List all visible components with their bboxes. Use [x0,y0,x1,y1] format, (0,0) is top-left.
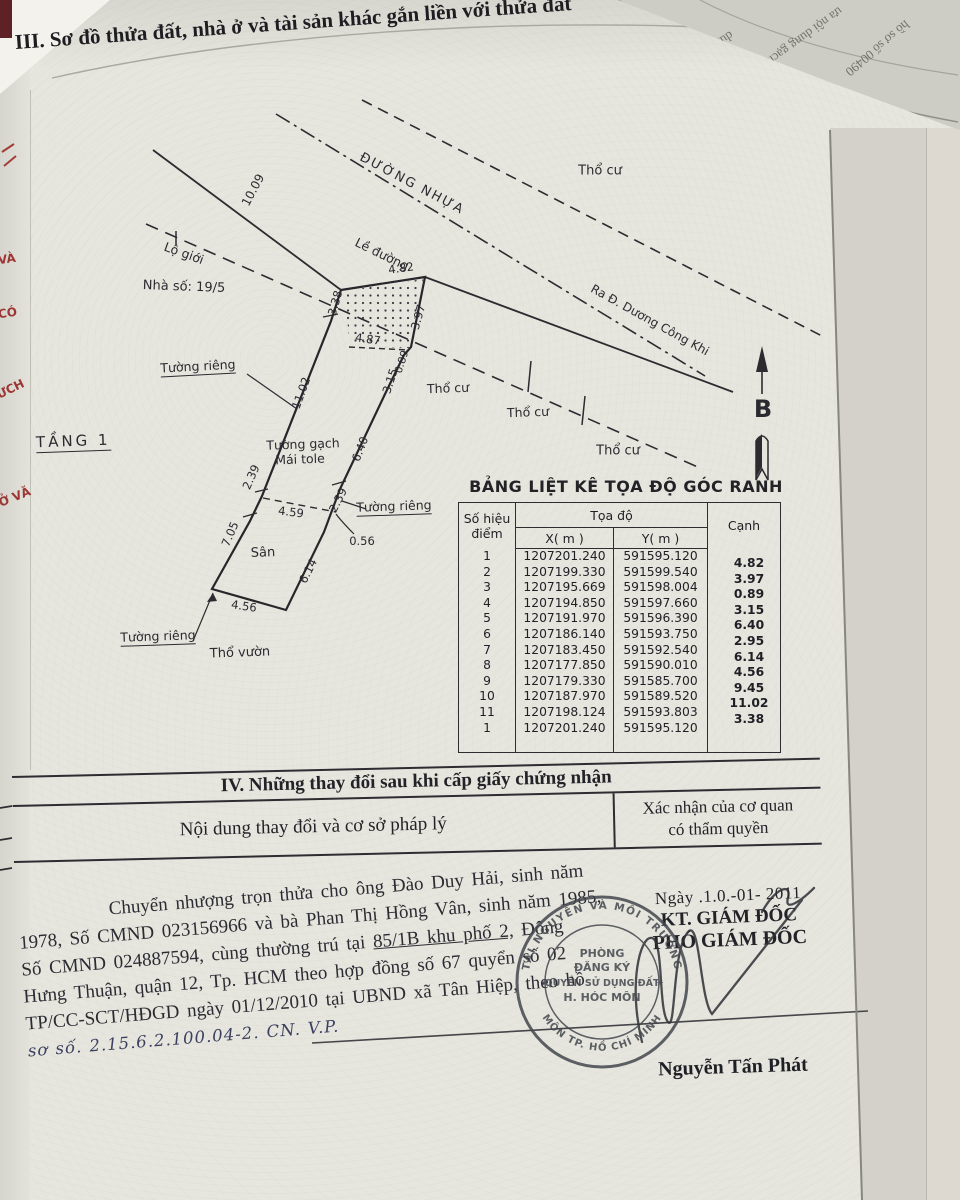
red-hatch-marks [2,144,16,166]
stamp-center-line2: ĐĂNG KÝ [574,961,631,974]
stamp-star-left: ★ [540,979,548,989]
red-fragment-1: VÀ [0,251,17,267]
maroon-corner-strip [0,0,12,38]
stamp-center-line3: QUYỀN SỬ DỤNG ĐẤT [545,976,660,989]
stamp-center-line1: PHÒNG [580,947,625,960]
red-fragment-2: CÓ [0,305,18,322]
stamp-signature-layer: TÀI NGUYÊN VÀ MÔI TRƯỜNG MÔN TP. HỒ CHÍ … [0,0,960,1200]
scanned-certificate-page: III. Sơ đồ thửa đất, nhà ở và tài sản kh… [0,0,960,1200]
stamp-center-line4: H. HÓC MÔN [563,991,640,1004]
